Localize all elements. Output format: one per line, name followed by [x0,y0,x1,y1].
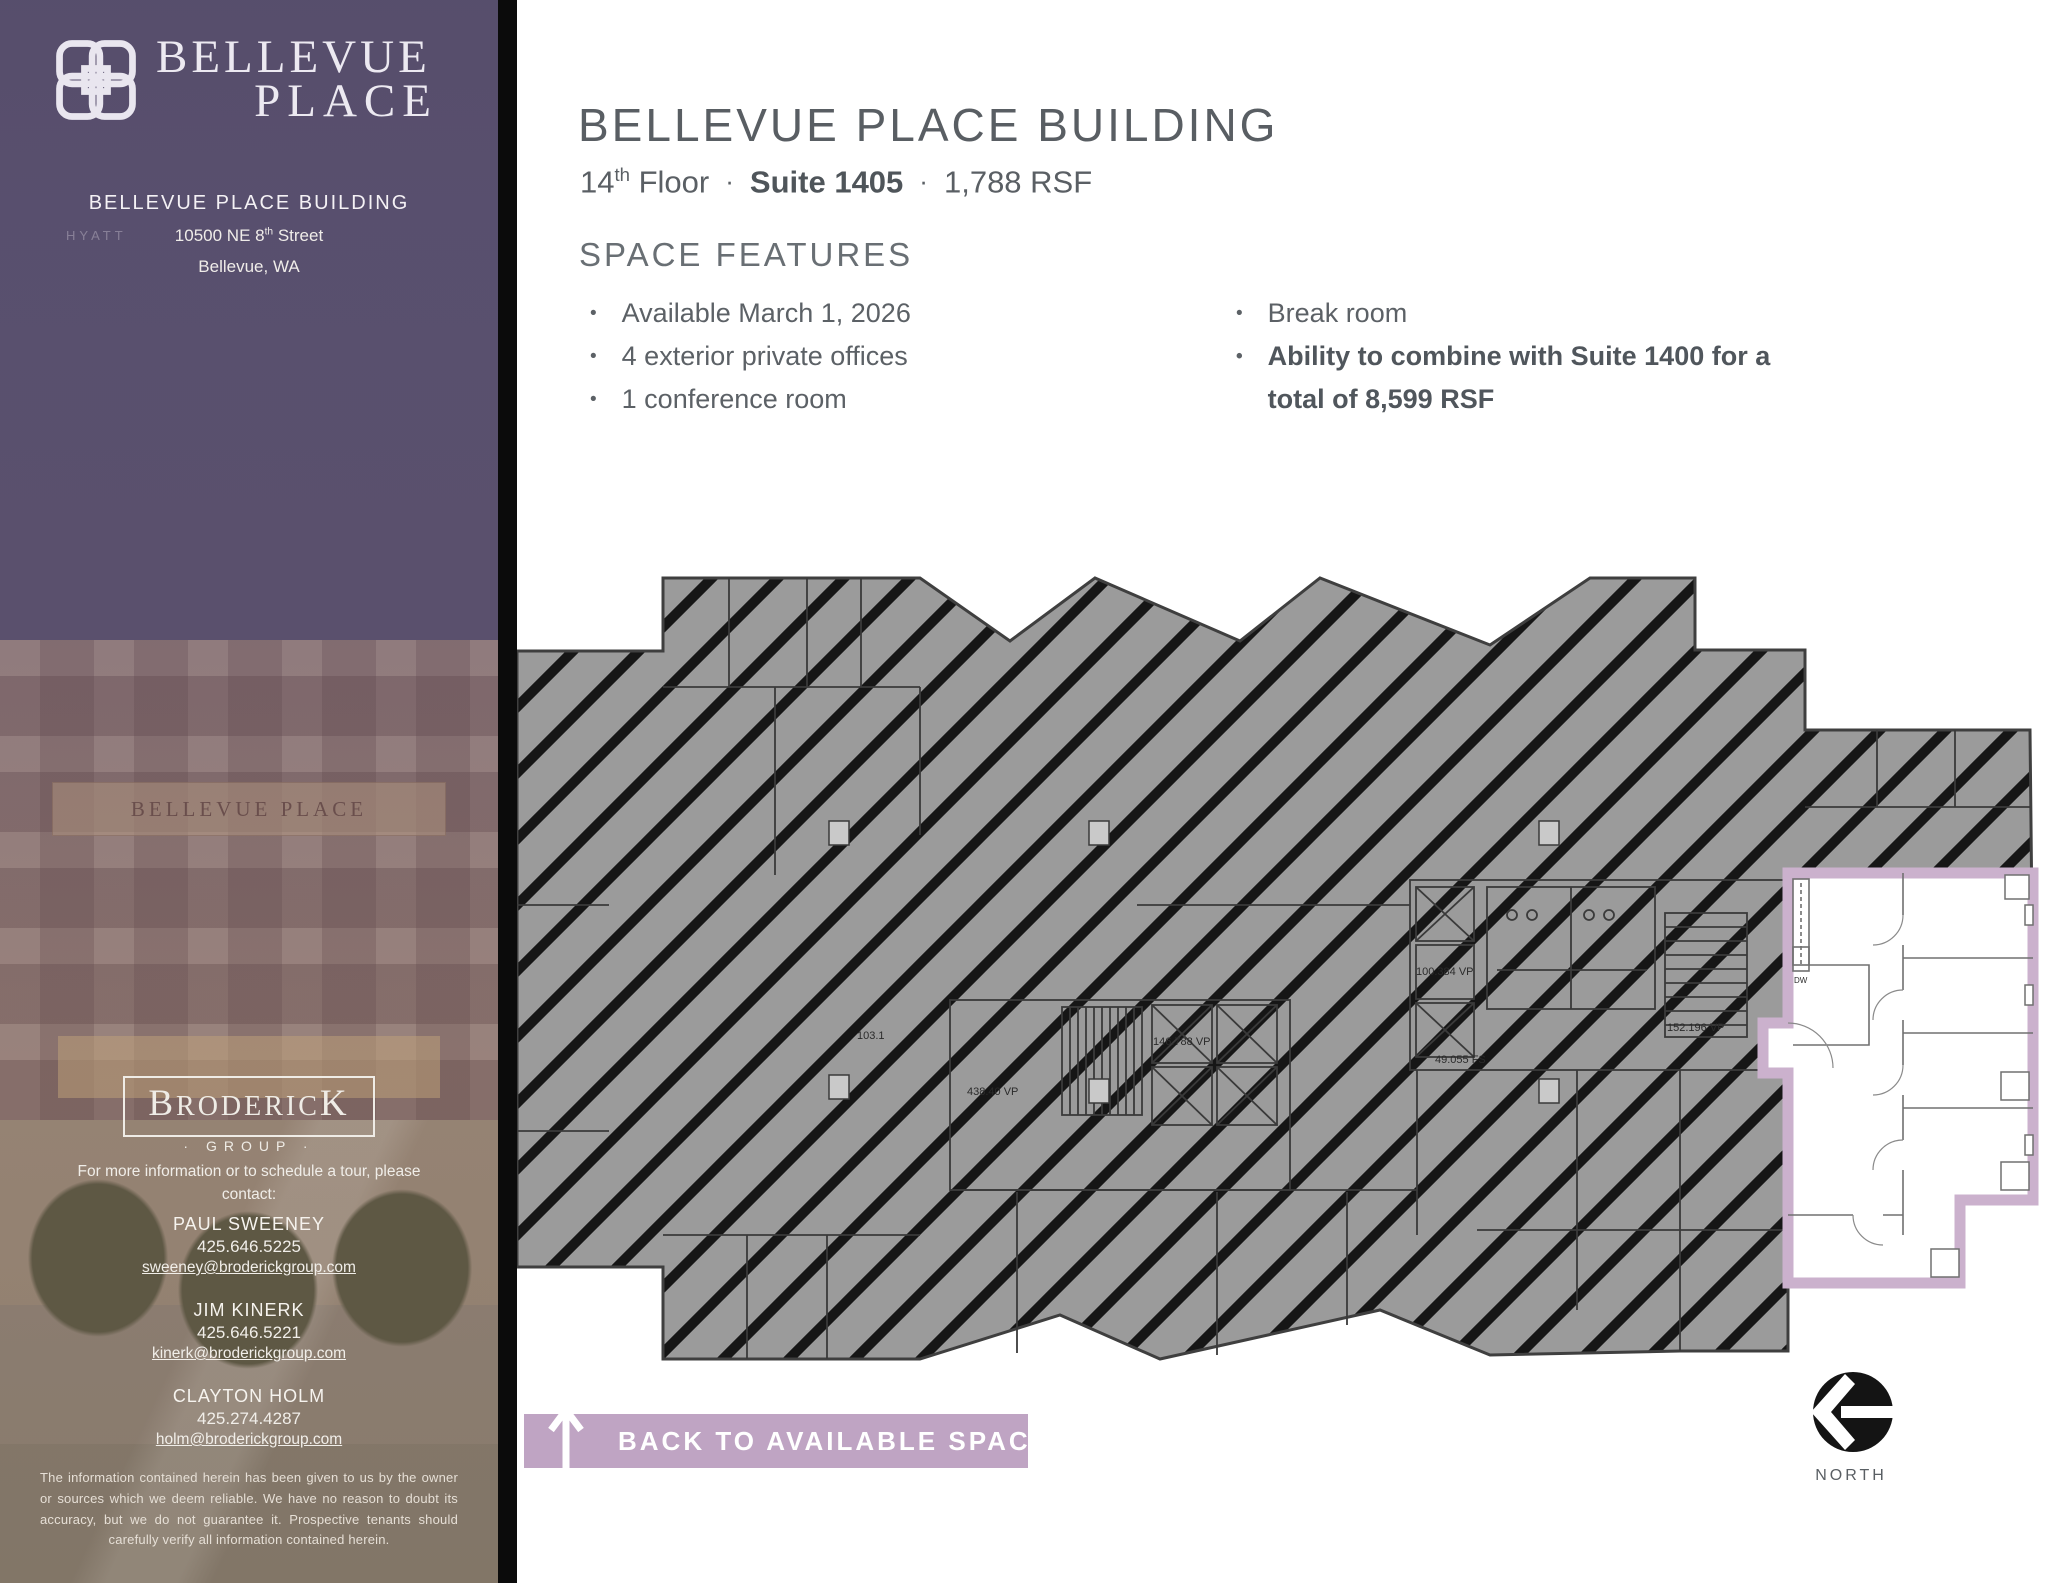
floor-number: 14 [580,164,614,199]
feature-text: Ability to combine with Suite 1400 for a… [1268,335,1811,421]
contact-intro: For more information or to schedule a to… [24,1160,474,1207]
back-to-available-space-button[interactable]: BACK TO AVAILABLE SPACE [524,1414,1028,1468]
page-title: BELLEVUE PLACE BUILDING [578,98,1278,152]
broker-final: K [320,1083,350,1124]
plan-room-label: 100.384 VP [1416,966,1474,978]
contact-phone: 425.646.5225 [0,1237,498,1257]
up-arrow-icon [546,1400,586,1496]
address-street-name: Street [273,226,323,245]
floor-ordinal-suffix: th [614,164,630,185]
bullet-dot-icon: • [1236,292,1243,335]
bullet-dot-icon: • [590,292,597,335]
sidebar: HYATT BELLEVUE PLACE [0,0,498,1583]
contact-phone: 425.274.4287 [0,1409,498,1429]
suite-1405-highlight: DW [1763,873,2033,1283]
dot-separator: · [919,166,928,196]
plan-room-label: 152.196 VP [1667,1022,1725,1034]
address-street-number: 10500 NE 8 [175,226,265,245]
space-features-heading: SPACE FEATURES [579,236,913,274]
sidebar-address-line2: Bellevue, WA [0,257,498,277]
bullet-dot-icon: • [590,335,597,378]
plan-room-label: 438.40 VP [967,1086,1018,1098]
bellevue-place-logo-icon [48,32,144,128]
north-indicator: NORTH [1806,1372,1896,1485]
contact-email-link[interactable]: sweeney@broderickgroup.com [142,1259,356,1277]
suite-1405-boundary [1763,873,2033,1283]
back-button-label: BACK TO AVAILABLE SPACE [618,1426,1051,1457]
contact-intro-line2: contact: [222,1186,276,1203]
feature-text: 1 conference room [622,378,847,421]
broker-name-mid: RODERIC [176,1091,320,1122]
features-right-column: • Break room • Ability to combine with S… [1236,292,1811,421]
floor-plan: 103.1 438.40 VP 146.788 VP 100.384 VP 49… [517,575,2040,1375]
feature-item: • Available March 1, 2026 [590,292,1190,335]
north-arrow-icon [1809,1372,1893,1456]
contact-email-link[interactable]: holm@broderickgroup.com [156,1431,342,1449]
flyer-page: HYATT BELLEVUE PLACE [0,0,2048,1583]
contact-name: PAUL SWEENEY [0,1214,498,1235]
broderick-group-subtitle: · GROUP · [0,1138,498,1154]
contact-card: PAUL SWEENEY 425.646.5225 sweeney@broder… [0,1214,498,1277]
sidebar-address-line1: 10500 NE 8th Street [0,226,498,246]
bullet-dot-icon: • [590,378,597,421]
address-ordinal-suffix: th [265,226,274,237]
feature-text: 4 exterior private offices [622,335,908,378]
bellevue-place-logo: BELLEVUE PLACE [46,28,456,158]
contact-name: JIM KINERK [0,1300,498,1321]
bullet-dot-icon: • [1236,335,1243,378]
feature-item: • 1 conference room [590,378,1190,421]
broker-initial: B [148,1083,176,1124]
contact-email-link[interactable]: kinerk@broderickgroup.com [152,1345,346,1363]
contact-name: CLAYTON HOLM [0,1386,498,1407]
contact-card: CLAYTON HOLM 425.274.4287 holm@broderick… [0,1386,498,1449]
plan-room-label: 103.1 [857,1030,885,1042]
features-left-column: • Available March 1, 2026 • 4 exterior p… [590,292,1190,421]
contact-card: JIM KINERK 425.646.5221 kinerk@broderick… [0,1300,498,1363]
plan-room-label: 146.788 VP [1153,1036,1211,1048]
floor-word: Floor [630,164,709,199]
contact-intro-line1: For more information or to schedule a to… [78,1163,421,1180]
dishwasher-label: DW [1794,976,1808,985]
suite-number: Suite 1405 [750,164,903,199]
disclaimer-text: The information contained herein has bee… [40,1468,458,1551]
feature-item: • Break room [1236,292,1811,335]
feature-text: Available March 1, 2026 [622,292,911,335]
sidebar-building-name: BELLEVUE PLACE BUILDING [0,192,498,215]
sidebar-divider-bar [498,0,517,1583]
feature-text: Break room [1268,292,1408,335]
suite-rsf: 1,788 RSF [944,164,1092,199]
contact-phone: 425.646.5221 [0,1323,498,1343]
feature-item-bold: • Ability to combine with Suite 1400 for… [1236,335,1811,421]
north-label: NORTH [1806,1467,1896,1485]
suite-subtitle: 14th Floor·Suite 1405·1,788 RSF [580,164,1092,200]
dot-separator: · [725,166,734,196]
contact-list: PAUL SWEENEY 425.646.5225 sweeney@broder… [0,1214,498,1472]
plan-room-label: 49.055 FS [1435,1054,1486,1066]
feature-item: • 4 exterior private offices [590,335,1190,378]
broderick-group-logo: BRODERICK [123,1076,375,1137]
